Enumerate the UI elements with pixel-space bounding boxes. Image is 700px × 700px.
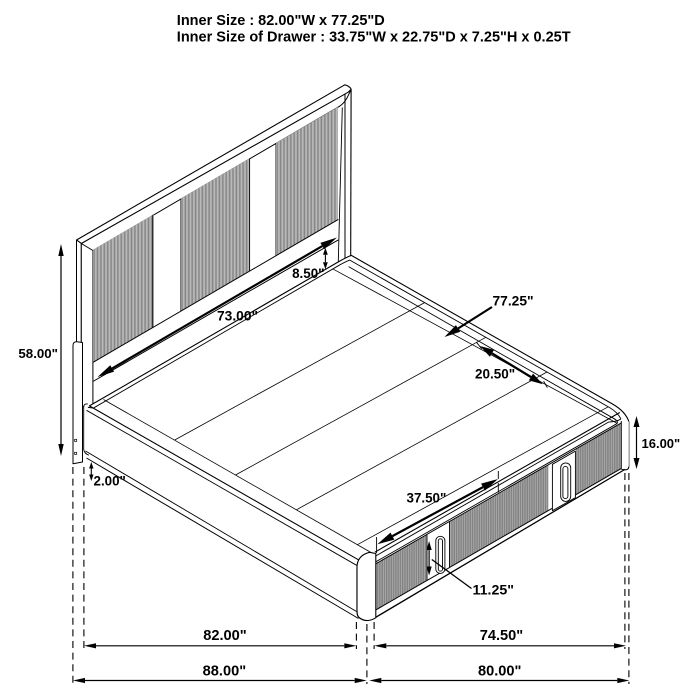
svg-text:37.50": 37.50" bbox=[407, 491, 447, 506]
svg-text:Inner Size : 82.00"W x 77.25"D: Inner Size : 82.00"W x 77.25"D bbox=[177, 13, 385, 29]
svg-text:88.00": 88.00" bbox=[203, 664, 246, 680]
svg-text:77.25": 77.25" bbox=[493, 294, 534, 309]
svg-text:74.50": 74.50" bbox=[480, 628, 523, 644]
svg-text:73.00": 73.00" bbox=[217, 309, 258, 324]
svg-text:82.00": 82.00" bbox=[203, 628, 246, 644]
svg-text:11.25": 11.25" bbox=[473, 583, 514, 599]
svg-text:20.50": 20.50" bbox=[475, 367, 515, 382]
svg-text:16.00": 16.00" bbox=[642, 436, 681, 451]
svg-text:2.00": 2.00" bbox=[94, 474, 126, 489]
svg-text:Inner Size of Drawer : 33.75"W: Inner Size of Drawer : 33.75"W x 22.75"D… bbox=[177, 30, 571, 46]
svg-text:8.50": 8.50" bbox=[292, 266, 324, 281]
svg-text:80.00": 80.00" bbox=[478, 664, 521, 680]
svg-text:58.00": 58.00" bbox=[18, 346, 58, 361]
